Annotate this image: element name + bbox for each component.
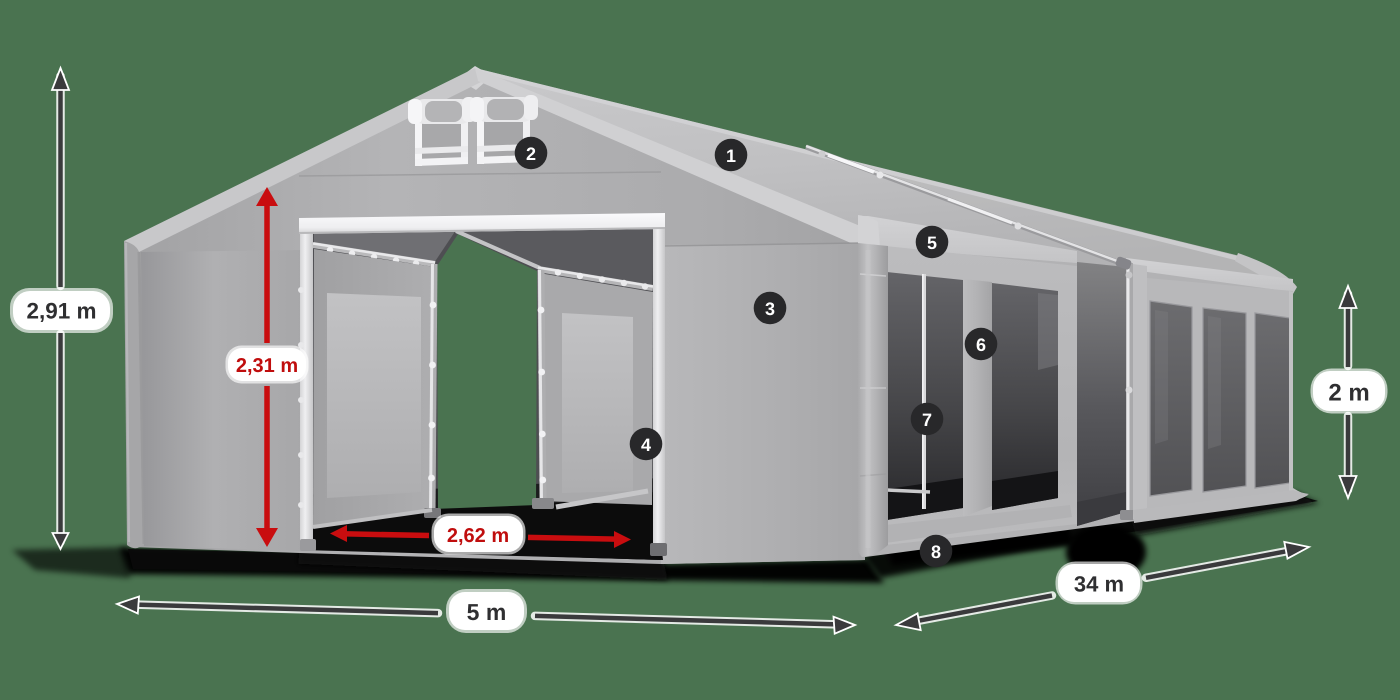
svg-text:5 m: 5 m <box>467 599 507 625</box>
svg-text:5: 5 <box>927 233 937 253</box>
svg-text:3: 3 <box>765 299 775 319</box>
svg-text:2: 2 <box>526 144 536 164</box>
svg-text:2,62 m: 2,62 m <box>447 525 509 547</box>
svg-text:2 m: 2 m <box>1328 380 1369 407</box>
svg-text:2,91 m: 2,91 m <box>26 299 96 324</box>
svg-text:4: 4 <box>641 435 651 455</box>
svg-text:2,31 m: 2,31 m <box>236 355 298 377</box>
svg-text:7: 7 <box>922 410 932 430</box>
svg-text:6: 6 <box>976 335 986 355</box>
svg-text:34 m: 34 m <box>1074 572 1124 597</box>
svg-text:1: 1 <box>726 146 736 166</box>
svg-text:8: 8 <box>931 542 941 562</box>
